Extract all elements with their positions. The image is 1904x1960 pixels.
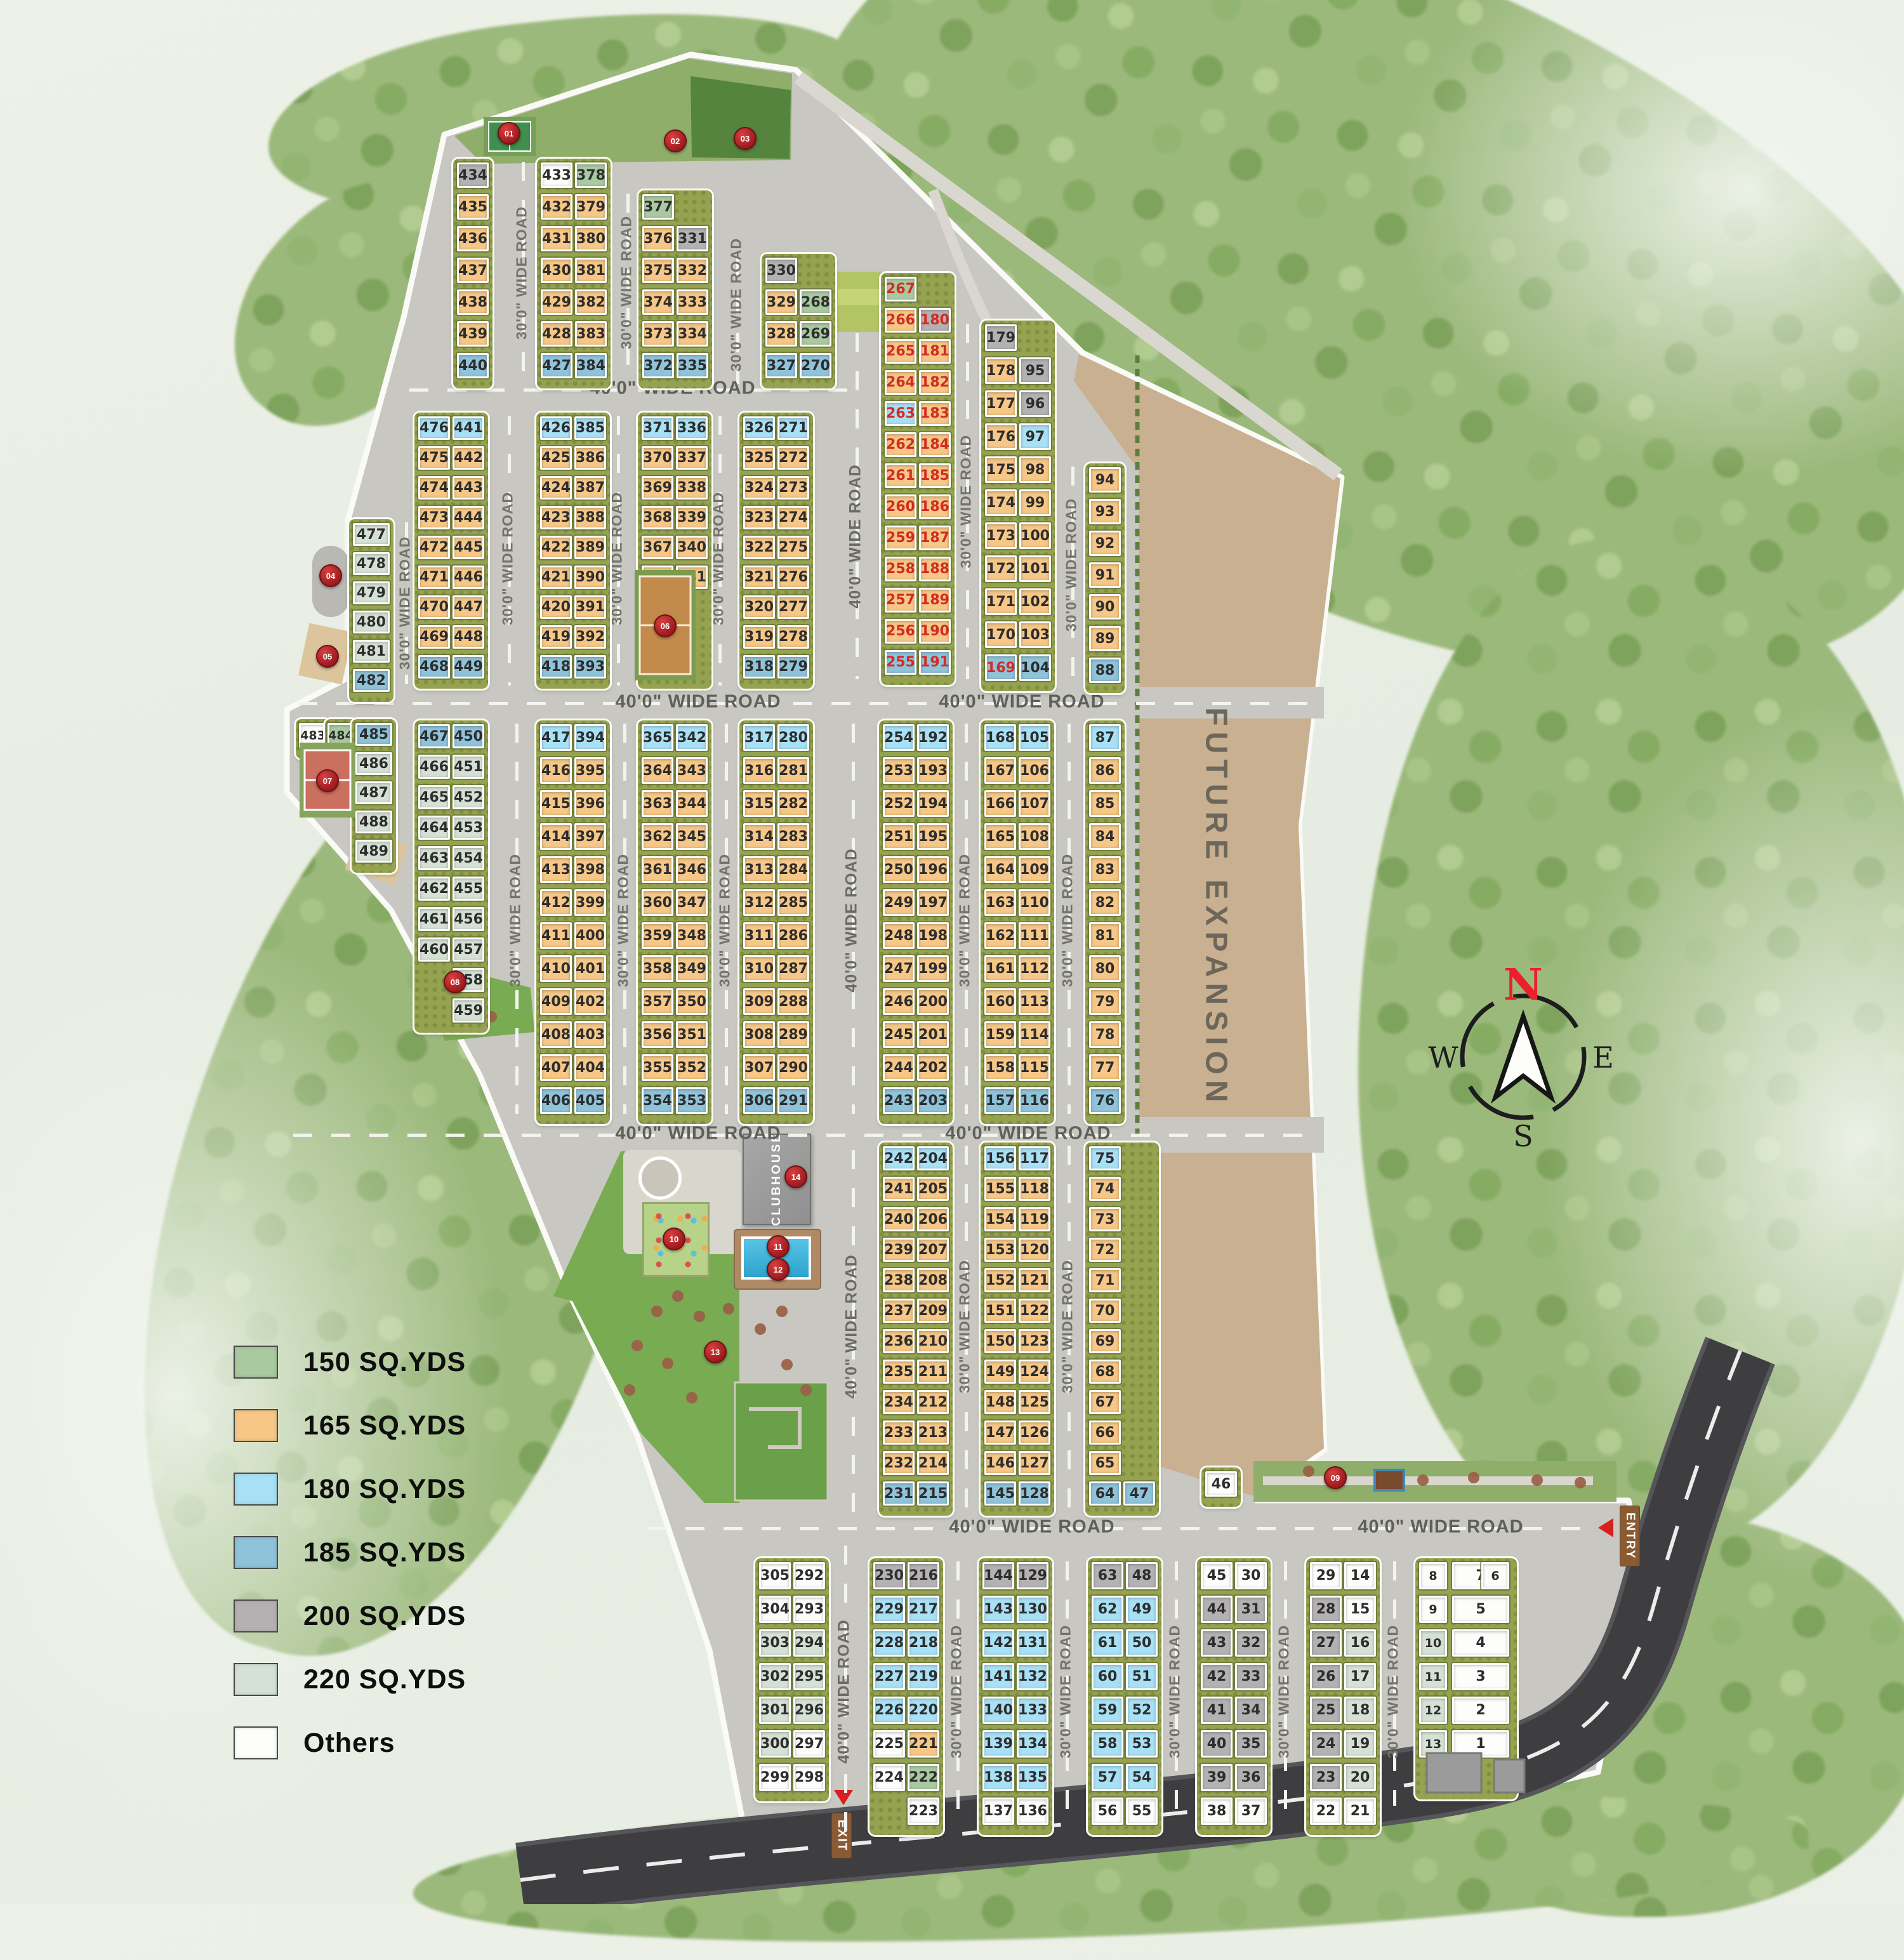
amenity-marker-03: 03 [734,127,757,150]
amenity-marker-06: 06 [654,614,677,637]
amenity-marker-05: 05 [316,645,339,668]
amenity-marker-13: 13 [704,1341,727,1363]
amenity-marker-02: 02 [664,129,687,152]
amenity-marker-09: 09 [1324,1466,1347,1489]
amenity-marker-12: 12 [767,1258,790,1281]
amenity-marker-11: 11 [767,1235,790,1258]
utility-buildings [1427,1753,1524,1792]
amenity-overlay [0,0,1904,1904]
site-layout-map: { "legend": { "items": [ {"key":"g","lab… [0,0,1904,1904]
amenity-marker-01: 01 [498,122,520,145]
amenity-marker-10: 10 [663,1228,685,1250]
amenity-marker-08: 08 [444,970,466,993]
amenity-marker-07: 07 [316,769,339,792]
amenity-marker-04: 04 [319,564,342,587]
amenity-marker-14: 14 [784,1165,807,1188]
